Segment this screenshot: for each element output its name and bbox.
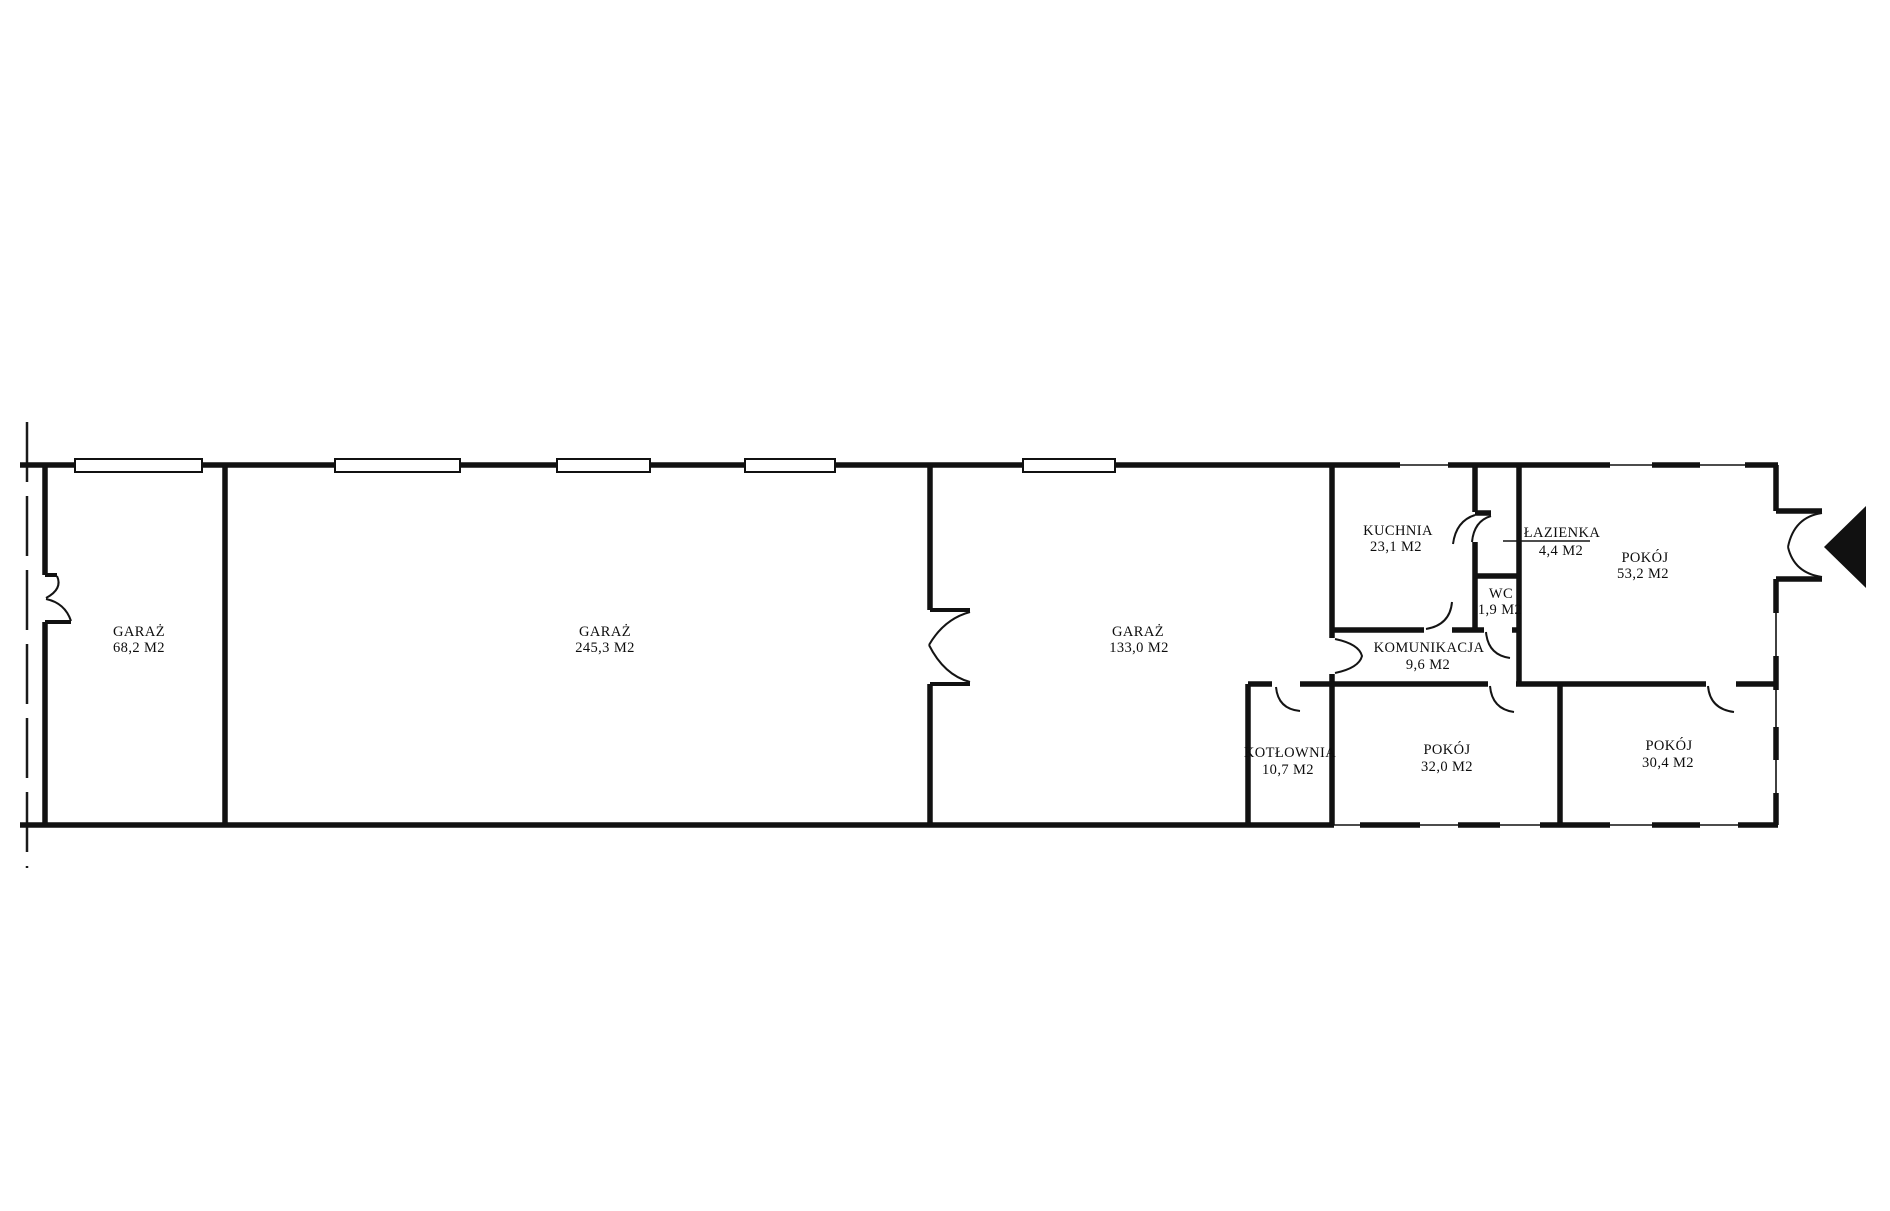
entrance-door-leaf (1788, 513, 1822, 547)
room-label-boiler-name: KOTŁOWNIA (1244, 745, 1336, 761)
room-label-room32-area: 32,0 M2 (1421, 759, 1473, 775)
room-label-garage2-area: 245,3 M2 (575, 640, 635, 656)
room-label-wc-area: 1,9 M2 (1478, 602, 1522, 618)
room-label-boiler-area: 10,7 M2 (1262, 762, 1314, 778)
corridor-door-leaves (1335, 639, 1362, 673)
room-label-corridor-name: KOMUNIKACJA (1374, 640, 1485, 656)
room-label-garage1-name: GARAŻ (113, 624, 165, 640)
room-label-garage2-name: GARAŻ (579, 624, 631, 640)
entrance-arrow-icon (1824, 506, 1866, 588)
room-label-bathroom-area: 4,4 M2 (1539, 543, 1583, 559)
garage1-door-leaf (46, 576, 59, 598)
room-label-garage3-area: 133,0 M2 (1109, 640, 1169, 656)
room-labels: GARAŻ 68,2 M2 GARAŻ 245,3 M2 GARAŻ 133,0… (113, 523, 1694, 778)
window-5 (1023, 459, 1115, 472)
room-label-room53-name: POKÓJ (1621, 549, 1668, 566)
room-label-room32-name: POKÓJ (1423, 741, 1470, 758)
window-4 (745, 459, 835, 472)
room-label-wc-name: WC (1489, 586, 1513, 602)
room-label-room304-name: POKÓJ (1645, 737, 1692, 754)
room-label-garage1-area: 68,2 M2 (113, 640, 165, 656)
kitchen-door-leaf (1426, 602, 1452, 629)
room-label-corridor-area: 9,6 M2 (1406, 657, 1450, 673)
room-label-garage3-name: GARAŻ (1112, 624, 1164, 640)
boiler-room-door-leaf (1276, 687, 1300, 711)
floor-plan-canvas: GARAŻ 68,2 M2 GARAŻ 245,3 M2 GARAŻ 133,0… (0, 0, 1890, 1211)
window-2 (335, 459, 460, 472)
garage1-door-leaf (46, 599, 71, 621)
entrance-door-leaf (1788, 547, 1822, 577)
room-label-bathroom-name: ŁAZIENKA (1524, 525, 1601, 541)
floor-plan-drawing: GARAŻ 68,2 M2 GARAŻ 245,3 M2 GARAŻ 133,0… (0, 0, 1890, 1211)
room-label-kitchen-area: 23,1 M2 (1370, 539, 1422, 555)
garage-door-leaf (929, 612, 970, 645)
window-1 (75, 459, 202, 472)
garage-door-leaf (929, 645, 970, 682)
projected-walls (1360, 579, 1778, 825)
room304-door-leaf (1708, 686, 1734, 712)
room-label-kitchen-name: KUCHNIA (1363, 523, 1433, 539)
room-label-room53-area: 53,2 M2 (1617, 566, 1669, 582)
bathroom-door-leaf (1472, 516, 1491, 542)
wc-door-leaf (1486, 632, 1510, 658)
room-label-room304-area: 30,4 M2 (1642, 755, 1694, 771)
walls (20, 465, 1822, 825)
window-3 (557, 459, 650, 472)
room32-door-leaf (1490, 686, 1514, 712)
